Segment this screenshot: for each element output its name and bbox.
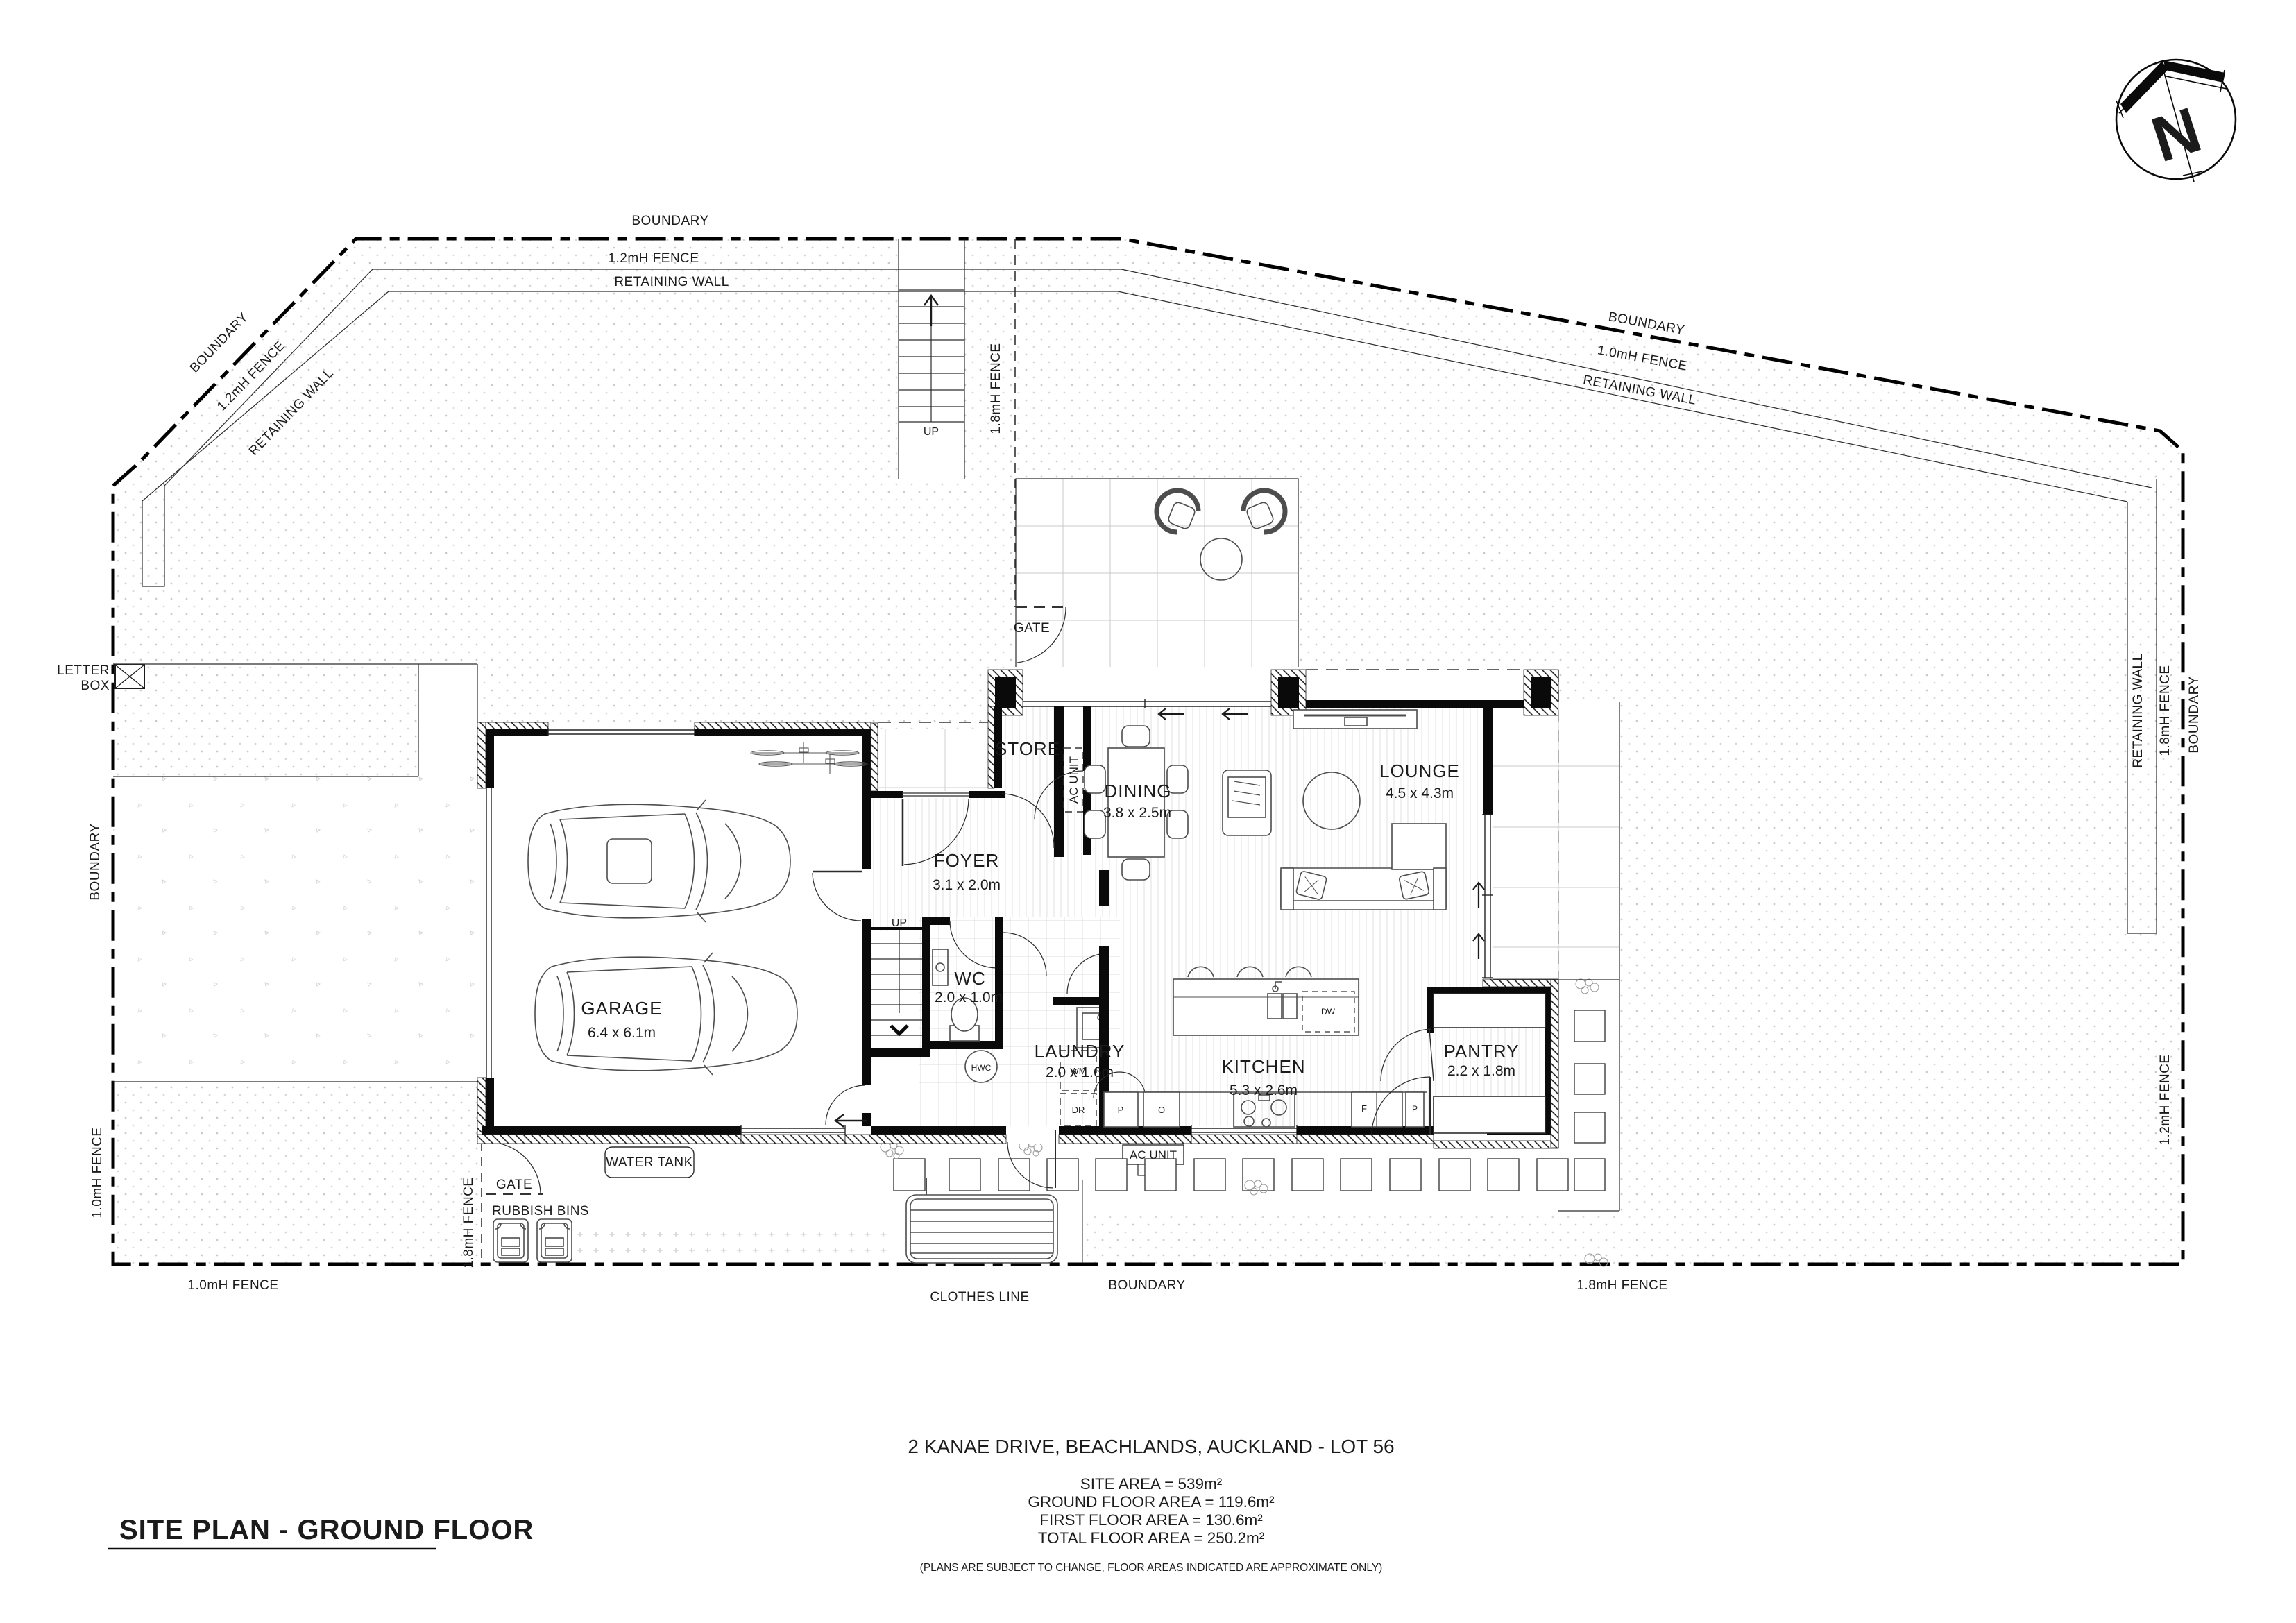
- svg-text:SITE PLAN - GROUND FLOOR: SITE PLAN - GROUND FLOOR: [119, 1515, 534, 1545]
- svg-text:GATE: GATE: [1014, 621, 1050, 636]
- svg-text:BOX: BOX: [80, 679, 110, 693]
- svg-text:1.8mH FENCE: 1.8mH FENCE: [1576, 1278, 1667, 1293]
- svg-text:BOUNDARY: BOUNDARY: [88, 823, 103, 900]
- svg-text:1.8mH FENCE: 1.8mH FENCE: [989, 343, 1003, 434]
- svg-text:LAUNDRY: LAUNDRY: [1035, 1041, 1125, 1062]
- svg-text:WATER TANK: WATER TANK: [606, 1155, 693, 1170]
- svg-text:RETAINING WALL: RETAINING WALL: [2131, 653, 2145, 767]
- svg-text:BOUNDARY: BOUNDARY: [631, 214, 708, 228]
- svg-text:TOTAL FLOOR AREA = 250.2m²: TOTAL FLOOR AREA = 250.2m²: [1038, 1529, 1265, 1547]
- svg-text:P: P: [1118, 1105, 1124, 1115]
- svg-text:UP: UP: [924, 426, 939, 438]
- svg-text:SITE AREA = 539m²: SITE AREA = 539m²: [1080, 1475, 1223, 1493]
- svg-text:BOUNDARY: BOUNDARY: [2187, 676, 2202, 753]
- svg-text:(PLANS ARE SUBJECT TO CHANGE,: (PLANS ARE SUBJECT TO CHANGE, FLOOR AREA…: [920, 1562, 1383, 1574]
- svg-text:1.0mH FENCE: 1.0mH FENCE: [187, 1278, 278, 1293]
- svg-text:GROUND FLOOR AREA = 119.6m²: GROUND FLOOR AREA = 119.6m²: [1028, 1493, 1275, 1511]
- svg-text:1.2mH FENCE: 1.2mH FENCE: [608, 251, 699, 266]
- svg-text:2.0 x 1.0m: 2.0 x 1.0m: [935, 989, 1003, 1005]
- svg-text:5.3 x 2.6m: 5.3 x 2.6m: [1230, 1082, 1298, 1098]
- svg-text:2.0 x 1.6m: 2.0 x 1.6m: [1046, 1064, 1114, 1080]
- svg-text:KITCHEN: KITCHEN: [1221, 1056, 1305, 1077]
- svg-text:1.8mH FENCE: 1.8mH FENCE: [461, 1177, 476, 1268]
- svg-text:2 KANAE DRIVE, BEACHLANDS, AUC: 2 KANAE DRIVE, BEACHLANDS, AUCKLAND - LO…: [908, 1436, 1394, 1457]
- svg-text:LETTER: LETTER: [57, 663, 110, 678]
- svg-text:P: P: [1412, 1104, 1418, 1114]
- svg-text:1.2mH FENCE: 1.2mH FENCE: [2158, 1054, 2172, 1145]
- svg-text:UP: UP: [892, 917, 907, 929]
- svg-text:O: O: [1158, 1105, 1165, 1115]
- svg-text:AC UNIT: AC UNIT: [1067, 756, 1080, 804]
- svg-text:LOUNGE: LOUNGE: [1379, 760, 1460, 781]
- svg-text:STORE: STORE: [995, 738, 1060, 759]
- svg-text:BOUNDARY: BOUNDARY: [1108, 1278, 1185, 1293]
- svg-text:4.5 x 4.3m: 4.5 x 4.3m: [1386, 785, 1454, 801]
- svg-text:DINING: DINING: [1105, 781, 1172, 801]
- svg-text:DR: DR: [1072, 1105, 1085, 1115]
- svg-text:F: F: [1361, 1103, 1367, 1114]
- svg-text:6.4 x 6.1m: 6.4 x 6.1m: [588, 1025, 656, 1041]
- svg-text:GARAGE: GARAGE: [581, 998, 662, 1019]
- svg-text:WC: WC: [954, 968, 985, 989]
- svg-text:DW: DW: [1321, 1007, 1336, 1017]
- svg-text:FIRST FLOOR AREA = 130.6m²: FIRST FLOOR AREA = 130.6m²: [1039, 1511, 1263, 1529]
- svg-text:1.0mH FENCE: 1.0mH FENCE: [90, 1127, 105, 1218]
- svg-text:3.1 x 2.0m: 3.1 x 2.0m: [933, 877, 1001, 893]
- svg-text:3.8 x 2.5m: 3.8 x 2.5m: [1103, 805, 1171, 821]
- svg-text:PANTRY: PANTRY: [1443, 1041, 1519, 1062]
- svg-text:RETAINING WALL: RETAINING WALL: [614, 275, 729, 289]
- svg-text:2.2 x 1.8m: 2.2 x 1.8m: [1447, 1063, 1515, 1079]
- svg-text:CLOTHES LINE: CLOTHES LINE: [930, 1290, 1029, 1305]
- svg-text:FOYER: FOYER: [934, 850, 1000, 871]
- svg-text:1.8mH FENCE: 1.8mH FENCE: [2158, 665, 2172, 756]
- svg-text:GATE: GATE: [496, 1178, 532, 1192]
- svg-text:RUBBISH BINS: RUBBISH BINS: [492, 1204, 589, 1218]
- svg-text:HWC: HWC: [971, 1063, 992, 1073]
